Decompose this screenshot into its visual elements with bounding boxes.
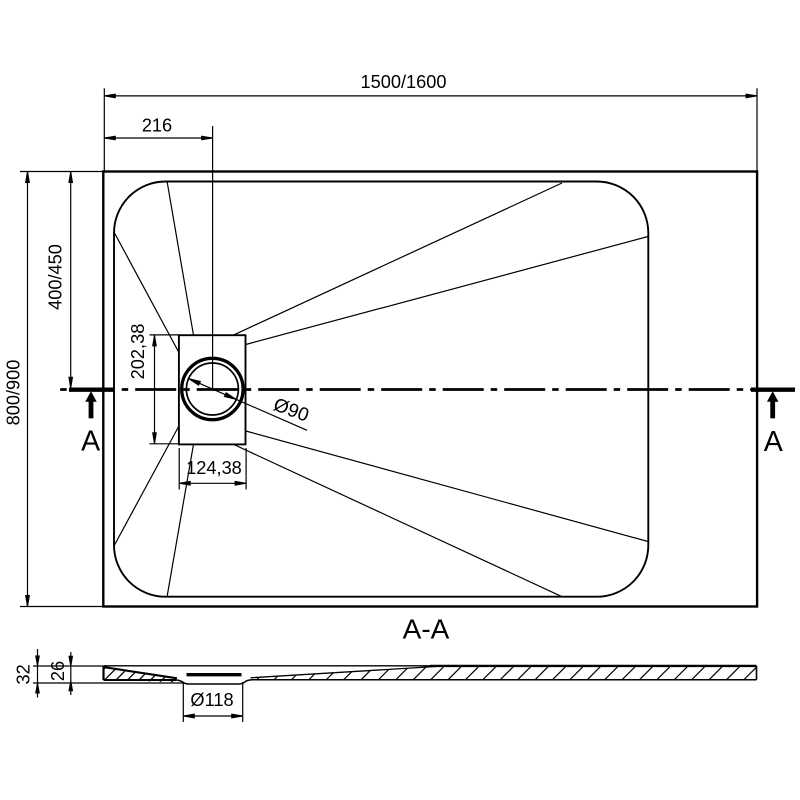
svg-text:A: A: [764, 426, 783, 458]
svg-text:800/900: 800/900: [4, 360, 24, 426]
svg-text:1500/1600: 1500/1600: [361, 72, 447, 92]
svg-text:32: 32: [14, 664, 34, 684]
svg-text:202,38: 202,38: [128, 324, 148, 380]
svg-text:216: 216: [142, 116, 172, 136]
svg-text:124,38: 124,38: [186, 458, 242, 478]
svg-text:26: 26: [48, 661, 68, 681]
svg-text:400/450: 400/450: [46, 244, 66, 310]
svg-text:A-A: A-A: [403, 614, 450, 645]
svg-text:Ø118: Ø118: [190, 690, 233, 710]
svg-text:A: A: [81, 426, 100, 458]
